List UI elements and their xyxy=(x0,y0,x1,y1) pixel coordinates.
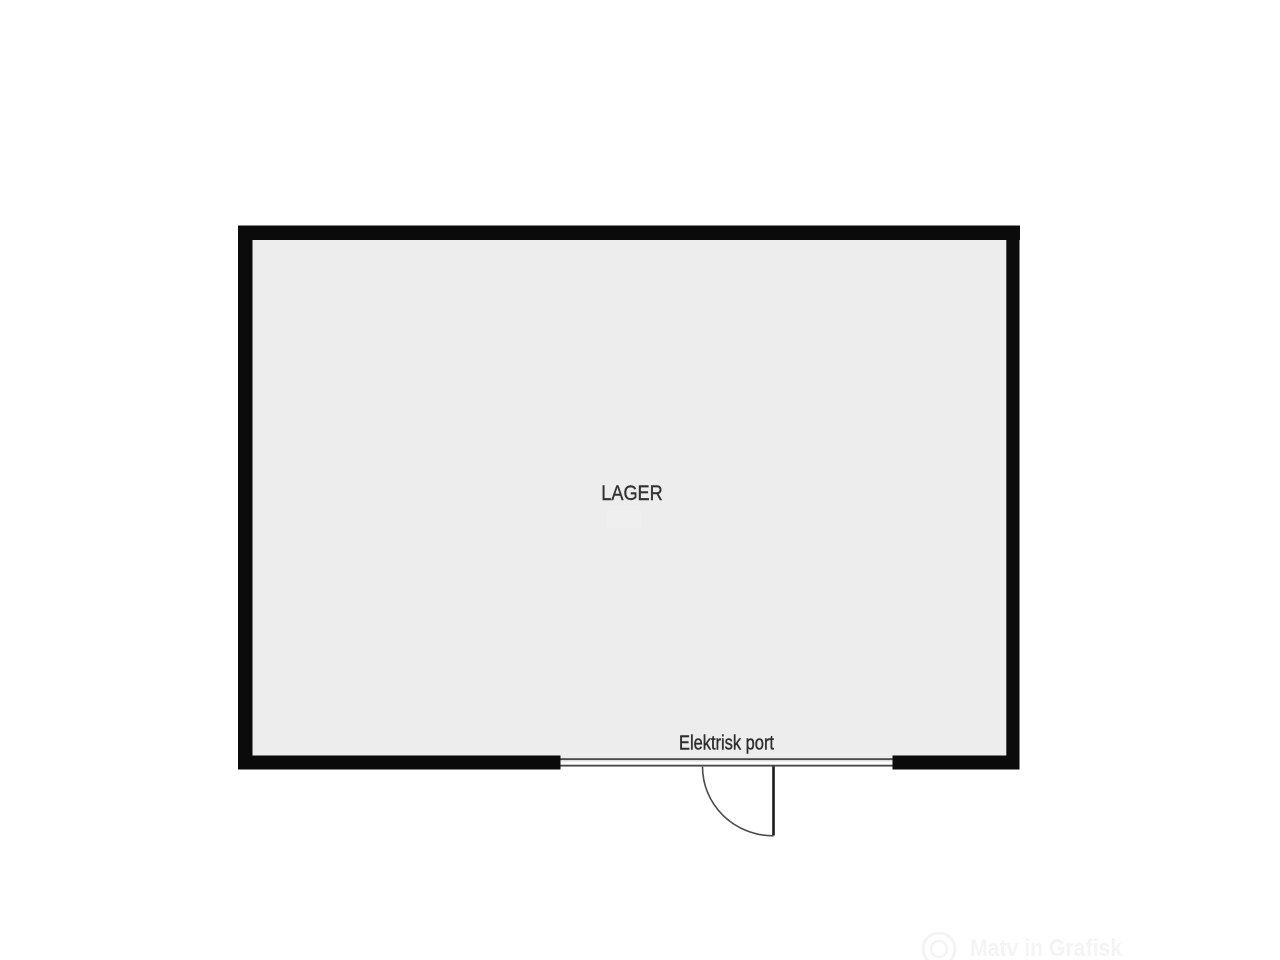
svg-text:LAGER: LAGER xyxy=(601,481,663,505)
svg-text:Matv in Grafisk: Matv in Grafisk xyxy=(970,935,1123,960)
svg-text:Elektrisk port: Elektrisk port xyxy=(679,733,774,755)
